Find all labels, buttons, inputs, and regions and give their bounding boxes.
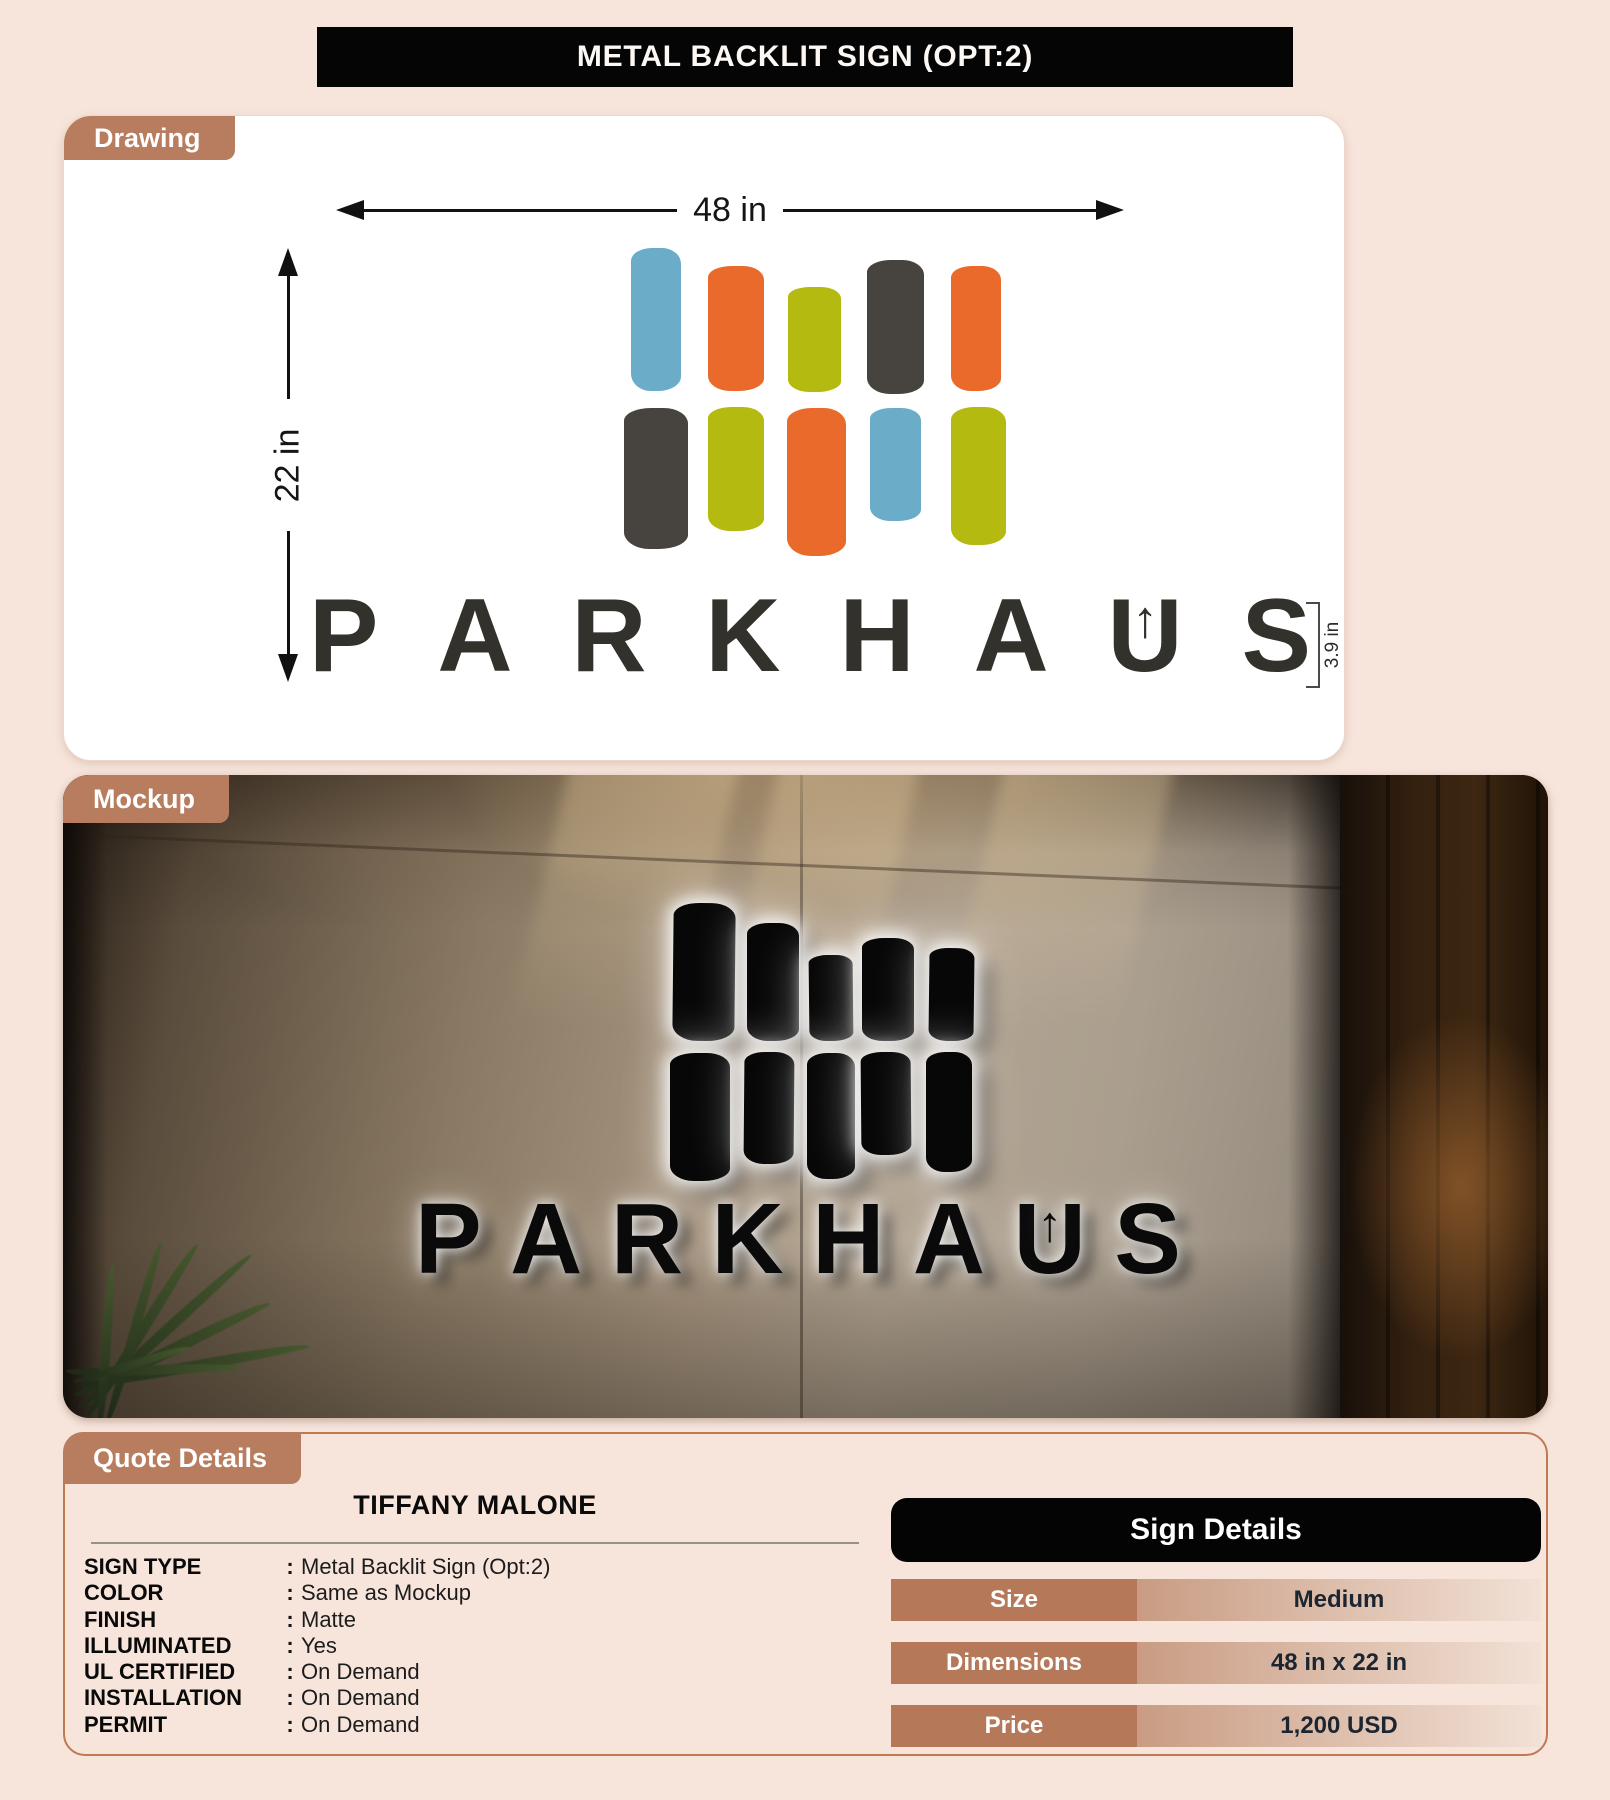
dimension-line — [287, 276, 290, 399]
spec-value: On Demand — [301, 1712, 550, 1738]
dimension-line — [783, 209, 1096, 212]
spec-separator: : — [279, 1712, 301, 1738]
brand-letter: U↑ — [1014, 1189, 1086, 1289]
spec-list: SIGN TYPE:Metal Backlit Sign (Opt:2)COLO… — [84, 1554, 550, 1738]
spec-label: COLOR — [84, 1580, 279, 1606]
logo-bar-olive — [788, 287, 841, 392]
logo-bar-charcoal — [867, 260, 924, 394]
logo-bar-blue — [861, 1052, 912, 1155]
arrow-right-icon — [1096, 200, 1124, 220]
logo-bar-blue — [870, 408, 921, 521]
brand-letter: R — [571, 584, 646, 688]
spec-label: INSTALLATION — [84, 1685, 279, 1711]
sign-details-row-value: 48 in x 22 in — [1137, 1642, 1541, 1684]
logo-bar-olive — [951, 407, 1006, 545]
logo-bar-orange — [951, 266, 1001, 391]
spotlight-beam — [701, 775, 924, 1105]
brand-letter: R — [611, 1189, 683, 1289]
spec-label: SIGN TYPE — [84, 1554, 279, 1580]
brand-letter: P — [415, 1189, 482, 1289]
sign-details-row: SizeMedium — [891, 1579, 1541, 1621]
spec-label: ILLUMINATED — [84, 1633, 279, 1659]
width-dimension: 48 in — [336, 190, 1124, 230]
mockup-sign-wordmark: PARKHAU↑S — [415, 1207, 1181, 1289]
spec-separator: : — [279, 1659, 301, 1685]
sign-details-row-value: 1,200 USD — [1137, 1705, 1541, 1747]
spec-separator: : — [279, 1607, 301, 1633]
drawing-panel: Drawing 48 in 22 in PARKHAU↑S 3.9 in — [63, 115, 1345, 761]
brand-letter: K — [712, 1189, 784, 1289]
sign-details-row-label: Size — [891, 1579, 1137, 1621]
wordmark-height-label: 3.9 in — [1322, 622, 1344, 668]
brand-letter: H — [812, 1189, 884, 1289]
up-arrow-icon: ↑ — [1132, 594, 1158, 646]
plant — [63, 1126, 357, 1418]
spec-separator: : — [279, 1580, 301, 1606]
page-title: METAL BACKLIT SIGN (OPT:2) — [317, 27, 1293, 87]
sign-details-table: Sign Details SizeMediumDimensions48 in x… — [891, 1498, 1541, 1768]
arrow-up-icon — [278, 248, 298, 276]
spec-separator: : — [279, 1633, 301, 1659]
brand-letter: A — [437, 584, 512, 688]
spec-value: Yes — [301, 1633, 550, 1659]
sign-details-row-label: Dimensions — [891, 1642, 1137, 1684]
dimension-line — [364, 209, 677, 212]
spec-separator: : — [279, 1554, 301, 1580]
sign-details-row: Price1,200 USD — [891, 1705, 1541, 1747]
brand-letter: A — [913, 1189, 985, 1289]
arrow-left-icon — [336, 200, 364, 220]
brand-letter: P — [309, 584, 378, 688]
brand-letter: A — [510, 1189, 582, 1289]
spec-label: PERMIT — [84, 1712, 279, 1738]
customer-name: TIFFANY MALONE — [85, 1490, 865, 1521]
height-dimension-label-wrap: 22 in — [251, 399, 325, 531]
height-dimension-label: 22 in — [269, 428, 308, 502]
wood-panel-shadow — [1288, 775, 1343, 1418]
page-title-text: METAL BACKLIT SIGN (OPT:2) — [577, 40, 1033, 74]
logo-bar-orange — [708, 266, 764, 391]
mockup-section-tab: Mockup — [63, 775, 229, 823]
quote-details-panel: Quote Details TIFFANY MALONE SIGN TYPE:M… — [63, 1432, 1548, 1756]
spec-value: On Demand — [301, 1659, 550, 1685]
brand-letter: A — [974, 584, 1049, 688]
sign-details-row-label: Price — [891, 1705, 1137, 1747]
spec-separator: : — [279, 1685, 301, 1711]
spec-value: Matte — [301, 1607, 550, 1633]
width-dimension-label: 48 in — [677, 191, 783, 230]
spec-label: UL CERTIFIED — [84, 1659, 279, 1685]
quote-details-section-tab: Quote Details — [63, 1432, 301, 1484]
dimension-line — [287, 531, 290, 654]
spec-value: Same as Mockup — [301, 1580, 550, 1606]
sign-details-row: Dimensions48 in x 22 in — [891, 1642, 1541, 1684]
arrow-down-icon — [278, 654, 298, 682]
logo-bar-charcoal — [624, 408, 688, 549]
wordmark-height-dimension: 3.9 in — [1316, 602, 1350, 688]
tile-seam — [800, 775, 803, 1418]
height-dimension: 22 in — [264, 248, 312, 682]
sign-details-header: Sign Details — [891, 1498, 1541, 1562]
brand-wordmark: PARKHAU↑S — [309, 604, 1311, 688]
brand-letter: H — [839, 584, 914, 688]
brand-letter: K — [705, 584, 780, 688]
sign-details-row-value: Medium — [1137, 1579, 1541, 1621]
brand-letter: S — [1114, 1189, 1181, 1289]
logo-bar-blue — [631, 248, 681, 391]
spec-value: Metal Backlit Sign (Opt:2) — [301, 1554, 550, 1580]
sign-details-rows: SizeMediumDimensions48 in x 22 inPrice1,… — [891, 1579, 1541, 1747]
divider — [91, 1542, 859, 1544]
brand-letter: S — [1242, 584, 1311, 688]
spotlight-beam — [491, 775, 744, 1105]
spotlight-beam — [926, 775, 1179, 1105]
spec-value: On Demand — [301, 1685, 550, 1711]
spec-label: FINISH — [84, 1607, 279, 1633]
wood-panel — [1340, 775, 1548, 1418]
brand-letter: U↑ — [1108, 584, 1183, 688]
logo-bar-orange — [787, 408, 846, 556]
logo-bar-olive — [708, 407, 764, 531]
drawing-section-tab: Drawing — [64, 116, 235, 160]
mockup-panel: PARKHAU↑S Mockup — [63, 775, 1548, 1418]
up-arrow-icon: ↑ — [1037, 1199, 1062, 1249]
